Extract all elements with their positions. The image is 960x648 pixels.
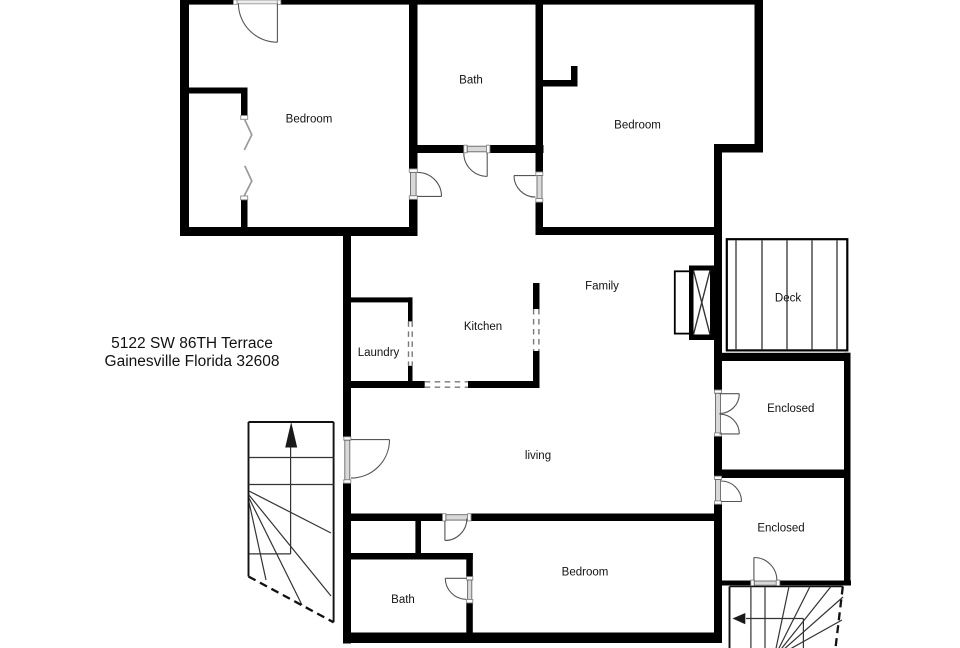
svg-text:Enclosed: Enclosed <box>767 403 814 415</box>
svg-text:Enclosed: Enclosed <box>757 522 804 534</box>
svg-text:Bedroom: Bedroom <box>614 119 661 131</box>
svg-text:Kitchen: Kitchen <box>464 321 502 333</box>
svg-text:Bedroom: Bedroom <box>562 566 609 578</box>
svg-text:Family: Family <box>585 280 619 292</box>
svg-text:Laundry: Laundry <box>358 347 400 359</box>
svg-text:Bedroom: Bedroom <box>286 113 333 125</box>
svg-text:Gainesville Florida 32608: Gainesville Florida 32608 <box>105 353 280 370</box>
svg-text:living: living <box>525 450 551 462</box>
svg-text:5122 SW 86TH Terrace: 5122 SW 86TH Terrace <box>111 335 273 352</box>
svg-text:Bath: Bath <box>459 74 483 86</box>
svg-text:Bath: Bath <box>391 594 415 606</box>
svg-text:Deck: Deck <box>775 292 801 304</box>
